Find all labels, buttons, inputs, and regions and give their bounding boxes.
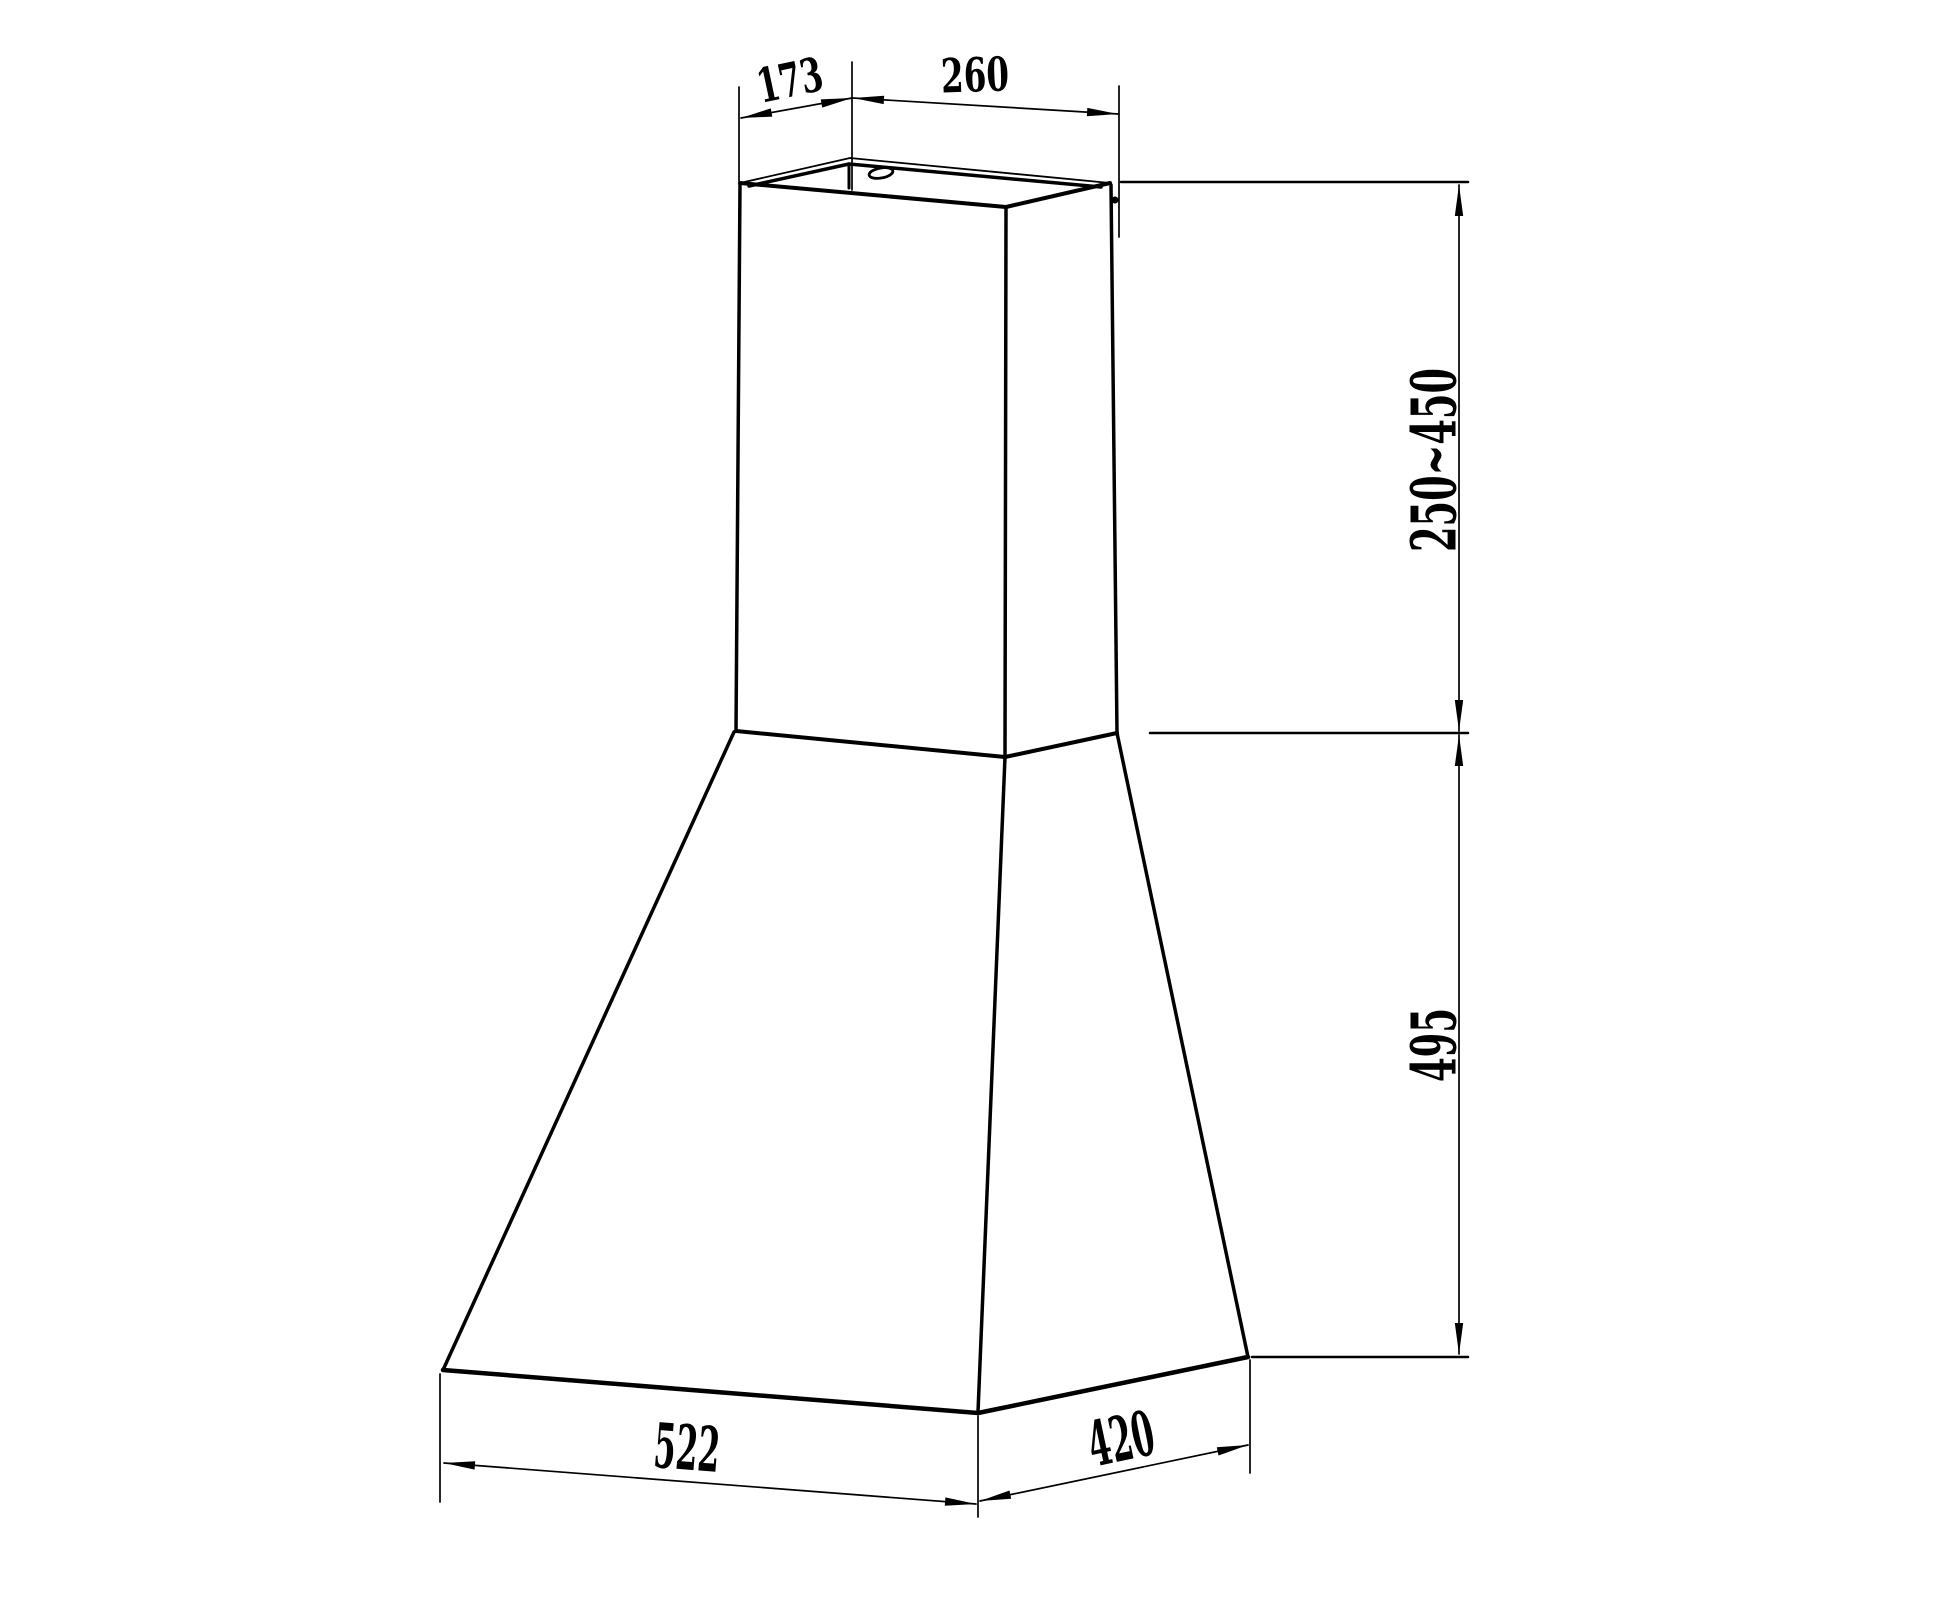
dim-top-width: 260 [853,47,1119,237]
duct-top-opening [740,158,1119,207]
arrowhead [1217,1441,1249,1456]
arrowhead [1455,1323,1463,1354]
range-hood-dimension-drawing: 173 260 250~450 495 522 [0,0,1956,1600]
dim-base-depth: 420 [979,1360,1250,1505]
chimney-duct [736,183,1117,757]
arrowhead [979,1491,1011,1506]
arrowhead [1455,735,1463,766]
arrowhead [1455,700,1463,731]
hood-canopy [443,731,1248,1413]
dim-body-height: 495 [1252,735,1471,1357]
mark-dot [1112,197,1119,204]
canopy-front-slope-edge [978,757,1005,1412]
technical-drawing-page: 173 260 250~450 495 522 [0,0,1956,1600]
top-opening-back-left-inner [749,164,849,186]
chimney-right-edge [1111,185,1117,733]
canopy-left-slope-edge [443,732,734,1370]
canopy-top-front-edge [736,731,1005,757]
vent-slot [868,166,893,180]
dim-label-body-height: 495 [1398,1008,1471,1082]
dim-label-top-width: 260 [940,47,1010,104]
dim-label-chimney-height: 250~450 [1398,368,1471,552]
chimney-front-edge [1005,207,1006,757]
dim-label-base-width: 522 [651,1409,723,1487]
top-opening-front-left-edge [740,183,1006,207]
dim-chimney-height: 250~450 [1121,182,1471,733]
dim-base-width: 522 [440,1374,978,1517]
canopy-right-slope-edge [1117,733,1248,1357]
top-opening-back-left-outer [740,158,850,183]
canopy-bottom-front-edge [443,1370,978,1413]
arrowhead [1455,185,1463,216]
chimney-left-edge [736,183,740,731]
canopy-top-right-edge [1005,733,1117,757]
dim-label-base-depth: 420 [1081,1396,1161,1481]
